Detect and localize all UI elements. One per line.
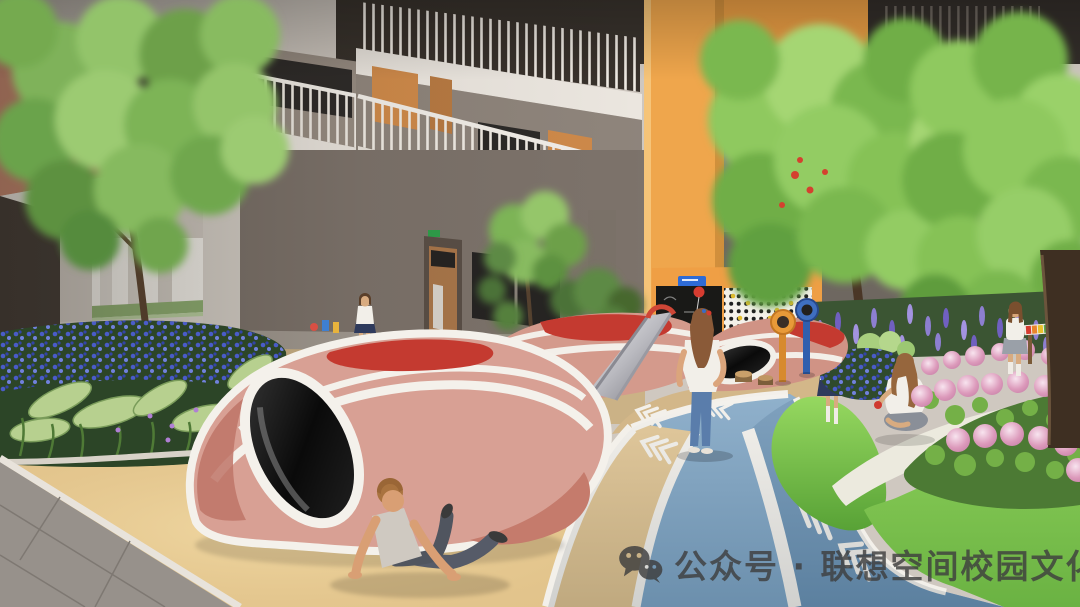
hair-clip-blue bbox=[702, 309, 706, 313]
hair-clip-red bbox=[707, 311, 712, 316]
distant-toy-3 bbox=[333, 322, 339, 333]
sign-plate-1-text bbox=[682, 279, 698, 281]
xylo-girl-skirt bbox=[1002, 338, 1028, 354]
distant-toy-1 bbox=[310, 323, 318, 331]
sign-plate-1 bbox=[678, 276, 706, 287]
boy-face bbox=[382, 490, 404, 512]
red-balloon bbox=[694, 287, 705, 298]
distant-girl-shirt bbox=[356, 306, 374, 324]
courtyard-rendering: 公众号 · 联想空间校园文化 bbox=[0, 0, 1080, 607]
scene-canvas bbox=[0, 0, 1080, 607]
distant-toy-2 bbox=[322, 320, 329, 331]
red-cup bbox=[874, 401, 882, 409]
